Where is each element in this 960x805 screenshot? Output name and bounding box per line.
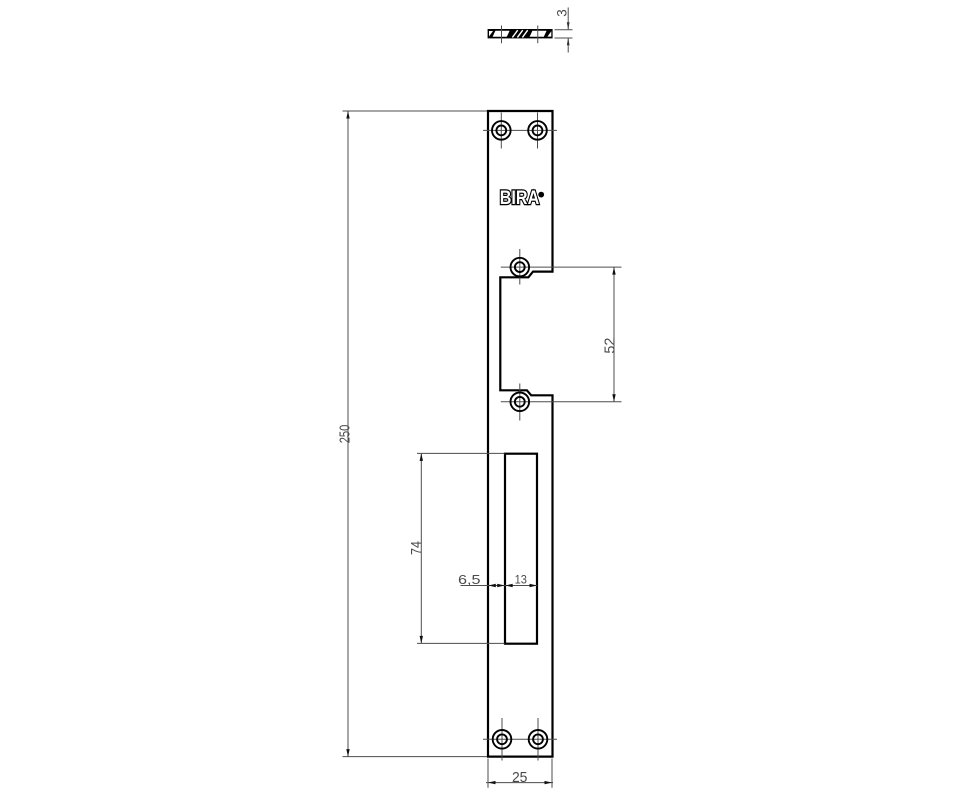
svg-text:6,5: 6,5 [458,572,481,587]
svg-text:BIRA: BIRA [500,188,540,209]
svg-text:250: 250 [336,425,353,444]
svg-text:3: 3 [555,9,570,17]
svg-text:13: 13 [515,573,528,587]
svg-text:25: 25 [512,769,528,786]
svg-text:52: 52 [602,338,619,354]
svg-text:74: 74 [408,541,425,555]
